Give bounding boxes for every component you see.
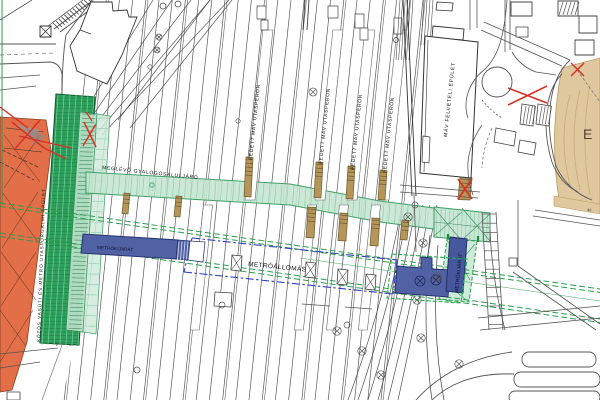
svg-text:E: E (583, 126, 592, 142)
svg-text:40: 40 (587, 208, 592, 212)
